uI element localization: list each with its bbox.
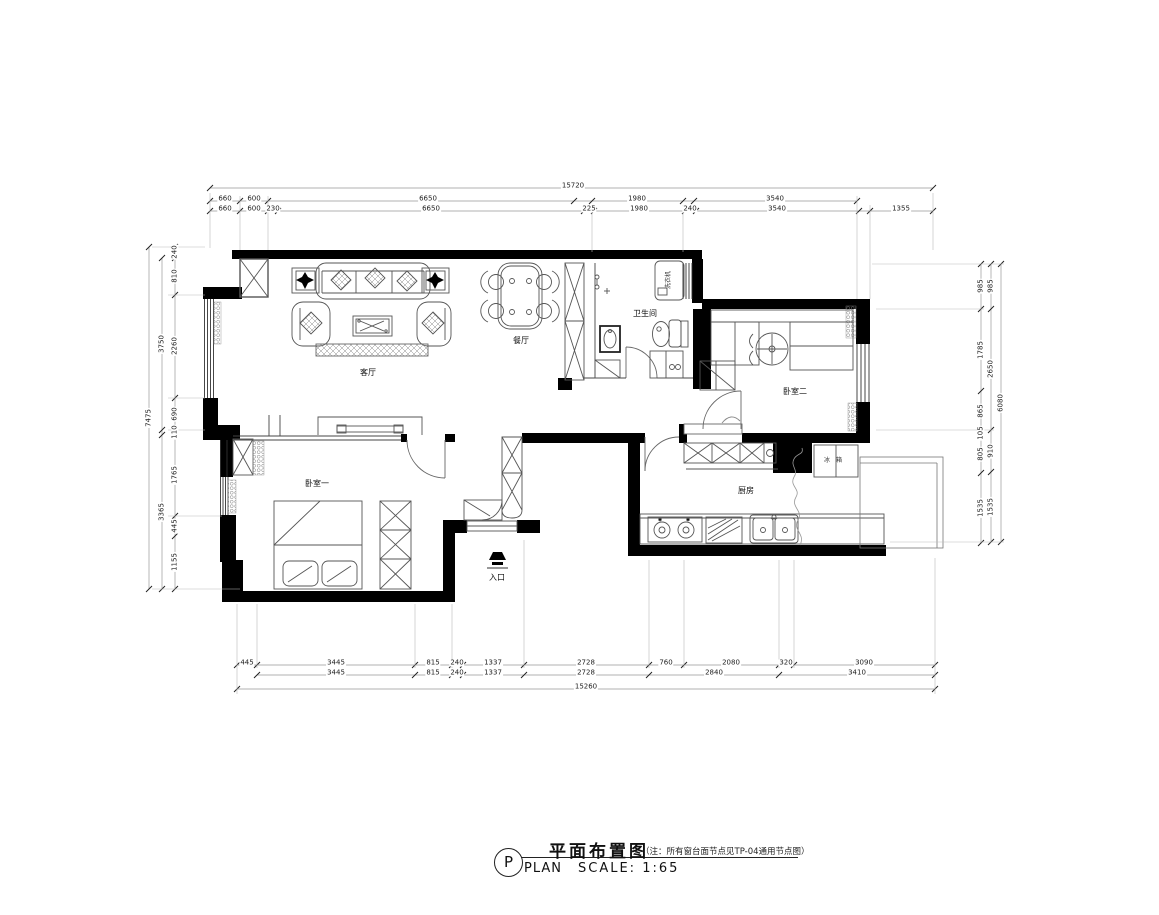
dimension-label: 600 [246,206,261,213]
dimension-label: 3445 [326,660,346,667]
dimension-label: 445 [172,518,179,533]
room-label-bedroom-2: 卧室二 [783,388,807,396]
entrance-symbol [487,552,508,568]
dimension-label: 6650 [418,196,438,203]
dimension-label: 1535 [988,497,995,517]
dining-table [498,263,542,329]
dimension-label: 3445 [326,670,346,677]
dimension-label: 600 [246,196,261,203]
bedroom2-sliding-door [684,391,742,434]
corner-shelf [595,360,620,378]
round-stool [750,333,789,365]
room-label-bathroom: 卫生间 [633,310,657,318]
bathroom-cabinet [650,351,683,378]
dimension-label: 1980 [629,206,649,213]
bathroom-door [626,347,657,378]
dimension-label: 1785 [978,340,985,360]
dimension-label: 660 [217,196,232,203]
fixture-label-fridge: 冰箱 [824,458,848,464]
dish-rack [706,517,742,543]
bathroom-sink [600,326,620,352]
dimension-label: 1337 [483,660,503,667]
plant-pot-left [292,268,319,293]
dimension-label: 2728 [576,670,596,677]
plan-note: （注：所有窗台面节点见TP-04通用节点图） [641,845,810,857]
kitchen-door [645,437,679,471]
dimension-label: 2650 [988,359,995,379]
window-sill-hatch [253,441,264,475]
hall-cabinet [565,263,584,380]
dimension-label: 3540 [765,196,785,203]
bedroom1-bed [274,501,362,589]
dimension-label: 110 [172,424,179,439]
dimension-label: 1355 [891,206,911,213]
dimension-label: 320 [778,660,793,667]
dimension-label: 1980 [627,196,647,203]
bedroom2-furniture [700,310,853,390]
bedroom1-closet [233,439,264,475]
armchair-pillow [422,312,444,334]
stove [648,517,702,542]
window-sill-hatch [228,480,236,513]
dimension-label: 760 [658,660,673,667]
dimension-label: 7475 [146,408,153,428]
entrance-sill [467,521,517,531]
toilet [653,320,689,347]
armchair-pillow [300,312,322,334]
dimension-label: 3750 [159,334,166,354]
dimension-label: 1337 [483,670,503,677]
dimension-label: 1765 [172,465,179,485]
shower-mixer [595,275,610,294]
dimension-label: 910 [988,443,995,458]
dimension-label: 15260 [574,684,598,691]
plan-title: 平面布置图 [549,837,649,862]
dimension-label: 3540 [767,206,787,213]
dimension-label: 3090 [854,660,874,667]
living-room-sofa [316,263,430,299]
bedroom1-door [407,440,445,478]
bedroom1-wardrobe [380,501,411,589]
dimension-label: 985 [978,278,985,293]
dimension-label: 2080 [721,660,741,667]
window-sill-hatch [214,302,221,344]
column-box [240,259,268,297]
dimension-label: 805 [978,446,985,461]
dimension-label: 660 [217,206,232,213]
window-sill-hatch [848,403,857,431]
dimension-label: 1155 [172,552,179,572]
dimension-label: 3410 [847,670,867,677]
sofa-pillow [331,270,351,290]
dimension-label: 240 [172,244,179,259]
rug [316,344,428,356]
sofa-pillow [397,271,417,291]
dimension-label: 2840 [704,670,724,677]
dimension-label: 3365 [159,502,166,522]
entry-corner-shelf [464,500,502,520]
dimension-label: 105 [978,425,985,440]
dimension-label: 865 [978,403,985,418]
kitchen-sink [750,515,798,543]
plan-name-en: PLAN [524,861,562,876]
balcony [860,457,943,548]
dimension-label: 230 [265,206,280,213]
dimension-label: 225 [581,206,596,213]
room-label-bedroom-1: 卧室一 [305,480,329,488]
dimension-label: 2260 [172,336,179,356]
bathroom-fixtures [595,261,688,378]
tv-console [318,417,422,435]
dimension-label: 810 [172,268,179,283]
coffee-table [353,316,392,336]
floor-plan-drawing [0,0,1159,915]
partitions [233,263,693,440]
room-label-dining-room: 餐厅 [513,337,529,345]
dimension-label: 815 [425,670,440,677]
room-label-kitchen: 厨房 [738,487,754,495]
plan-symbol-letter: P [504,853,513,871]
dining-chairs [481,271,559,322]
dimension-label: 1535 [978,498,985,518]
plant-pot-right [422,268,449,293]
dimension-label: 240 [449,660,464,667]
floor-plan-canvas: 客厅餐厅卫生间卧室二卧室一厨房入口洗衣机冰箱157206606006650198… [0,0,1159,915]
dimension-label: 15720 [561,183,585,190]
plan-scale: SCALE: 1:65 [578,861,679,876]
shoe-cabinet [502,437,522,518]
room-label-living-room: 客厅 [360,369,376,377]
plan-symbol: P [494,848,523,877]
dimension-label: 240 [449,670,464,677]
living-room-armchair-right [417,302,451,346]
dimension-label: 6650 [421,206,441,213]
kitchen-upper-cabinet [684,443,778,469]
dimension-label: 815 [425,660,440,667]
dimension-label: 690 [172,406,179,421]
dimension-label: 985 [988,278,995,293]
dimension-label: 445 [239,660,254,667]
dimension-label: 2728 [576,660,596,667]
living-room-armchair-left [292,302,330,346]
room-label-entrance: 入口 [489,574,505,582]
dimension-label: 240 [682,206,697,213]
fixture-label-washing-machine: 洗衣机 [666,271,672,289]
walls [203,250,886,602]
dimension-label: 6080 [998,393,1005,413]
